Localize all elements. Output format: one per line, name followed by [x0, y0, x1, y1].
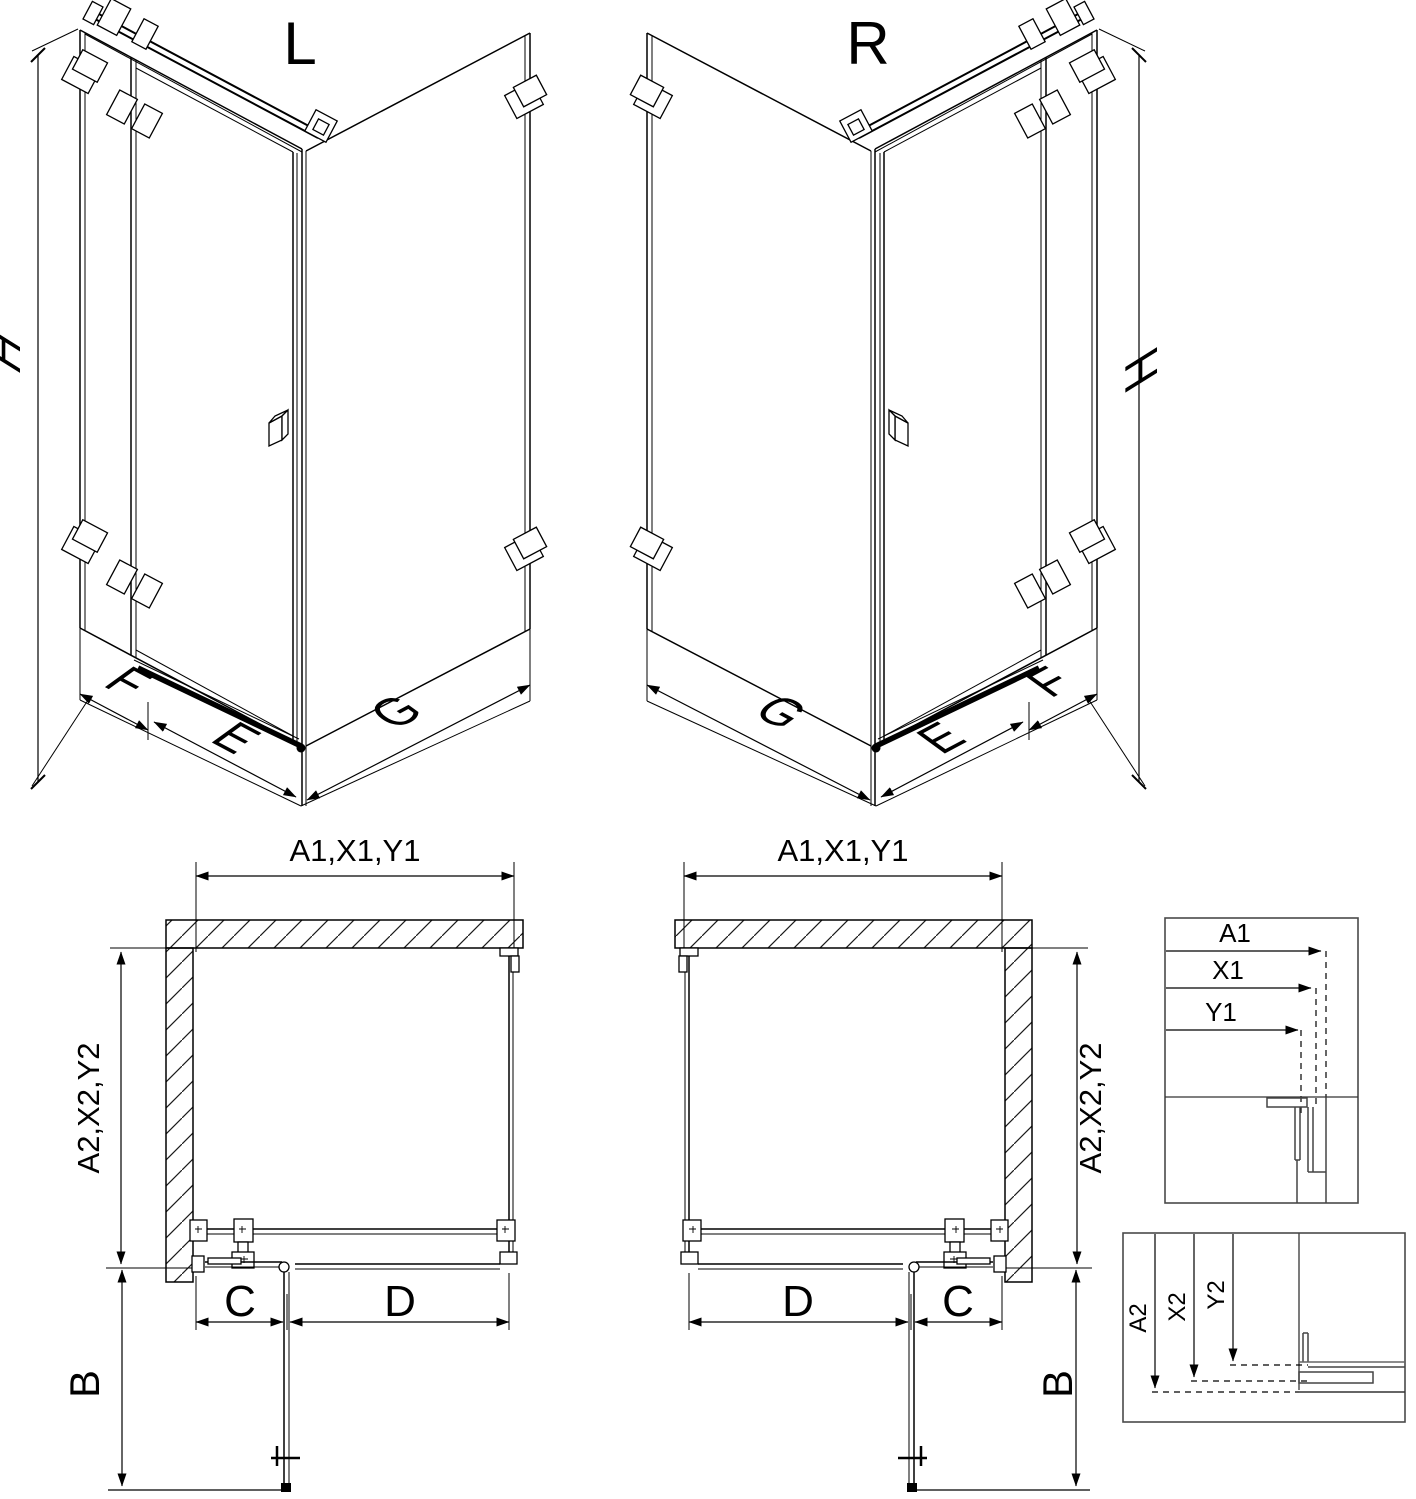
- dimension-label-height-left: H: [0, 317, 30, 383]
- detail-width-label-y1: Y1: [1205, 997, 1237, 1027]
- dimension-label-side-panel-left: F: [92, 659, 163, 706]
- wall-hatching: [166, 920, 1032, 1282]
- plan-right-width-label: A1,X1,Y1: [778, 833, 909, 868]
- dimension-label-side-panel-right: F: [1014, 659, 1085, 706]
- plan-left-door-label: D: [384, 1277, 416, 1326]
- plan-right-fixed-label: C: [942, 1277, 974, 1326]
- detail-box-width: A1 X1 Y1: [1165, 918, 1358, 1203]
- plan-left-opening-label: B: [61, 1370, 108, 1398]
- variant-label-left: L: [283, 10, 316, 77]
- detail-depth-profile-section: [1299, 1333, 1405, 1392]
- dimension-label-height-right: H: [1115, 337, 1167, 403]
- dimension-label-return-right: G: [742, 687, 820, 737]
- detail-depth-label-y2: Y2: [1203, 1280, 1230, 1309]
- detail-depth-label-x2: X2: [1164, 1292, 1191, 1321]
- detail-box-depth: A2 X2 Y2: [1123, 1233, 1405, 1422]
- detail-depth-label-a2: A2: [1125, 1303, 1152, 1332]
- detail-width-profile-section: [1267, 1097, 1326, 1203]
- plan-left-width-label: A1,X1,Y1: [290, 833, 421, 868]
- iso-view-right: R H G E F: [630, 0, 1167, 806]
- variant-label-right: R: [846, 10, 889, 77]
- plan-right-depth-label: A2,X2,Y2: [1073, 1043, 1108, 1174]
- detail-width-label-x1: X1: [1212, 955, 1244, 985]
- plan-right-opening-label: B: [1034, 1370, 1081, 1398]
- dimension-label-return-left: G: [358, 687, 436, 737]
- detail-width-label-a1: A1: [1219, 918, 1251, 948]
- plan-right-door-label: D: [782, 1277, 814, 1326]
- plan-left-depth-label: A2,X2,Y2: [71, 1043, 106, 1174]
- shower-enclosure-diagram: L H F E G R H G E F A1,X1,Y1 A2,X2,Y2 C …: [0, 0, 1416, 1499]
- iso-view-left: L H F E G: [0, 0, 547, 806]
- technical-diagram-page: L H F E G R H G E F A1,X1,Y1 A2,X2,Y2 C …: [0, 0, 1416, 1499]
- plan-left-fixed-label: C: [224, 1277, 256, 1326]
